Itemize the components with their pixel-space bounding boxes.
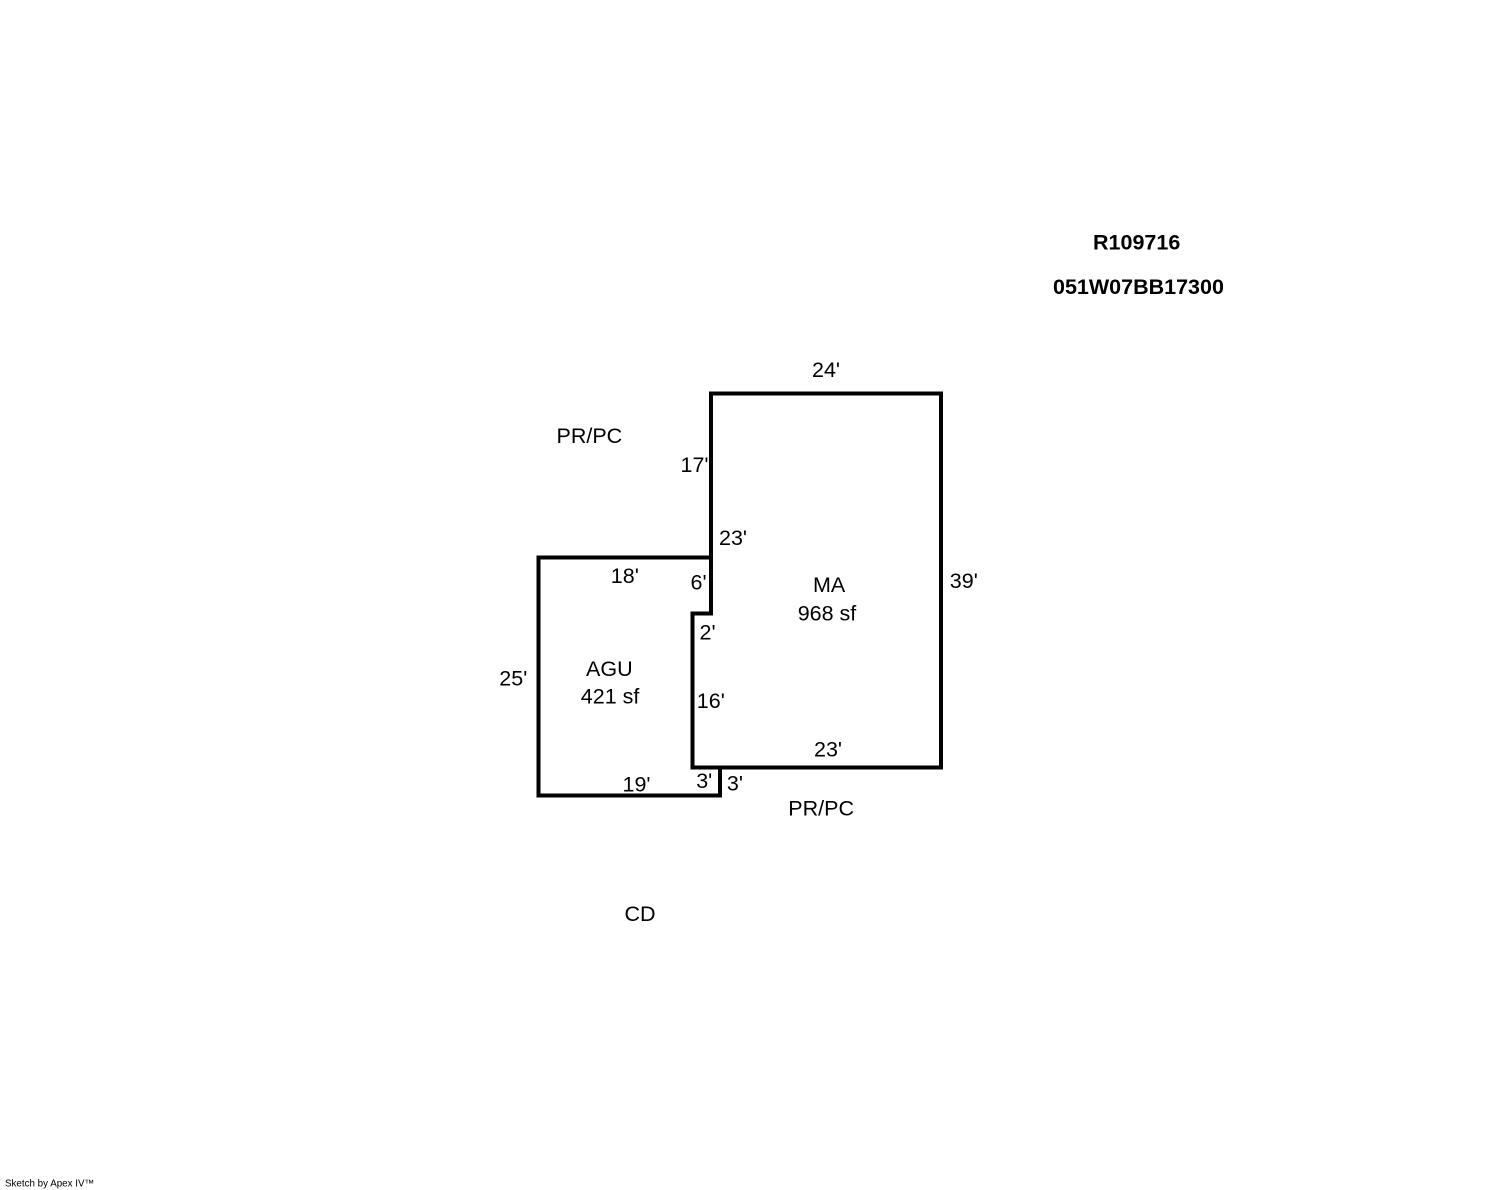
svg-text:6': 6' <box>691 571 707 595</box>
svg-text:24': 24' <box>812 358 840 382</box>
svg-text:MA: MA <box>813 573 846 597</box>
svg-text:R109716: R109716 <box>1093 230 1180 254</box>
svg-text:AGU: AGU <box>586 657 633 681</box>
svg-text:051W07BB17300: 051W07BB17300 <box>1053 275 1224 299</box>
svg-text:17': 17' <box>681 453 709 477</box>
svg-text:PR/PC: PR/PC <box>557 424 623 448</box>
svg-text:2': 2' <box>700 620 716 644</box>
svg-text:18': 18' <box>611 564 639 588</box>
svg-text:Sketch by Apex IV™: Sketch by Apex IV™ <box>5 1178 94 1189</box>
svg-text:968 sf: 968 sf <box>798 602 857 626</box>
svg-text:25': 25' <box>499 666 527 690</box>
svg-text:3': 3' <box>727 771 743 795</box>
svg-text:3': 3' <box>696 769 712 793</box>
svg-text:421 sf: 421 sf <box>581 685 640 709</box>
svg-text:23': 23' <box>719 526 747 550</box>
svg-text:PR/PC: PR/PC <box>788 797 854 821</box>
svg-text:19': 19' <box>623 772 651 796</box>
svg-text:16': 16' <box>697 689 725 713</box>
svg-text:CD: CD <box>625 902 656 926</box>
svg-text:23': 23' <box>814 738 842 762</box>
svg-text:39': 39' <box>950 569 978 593</box>
